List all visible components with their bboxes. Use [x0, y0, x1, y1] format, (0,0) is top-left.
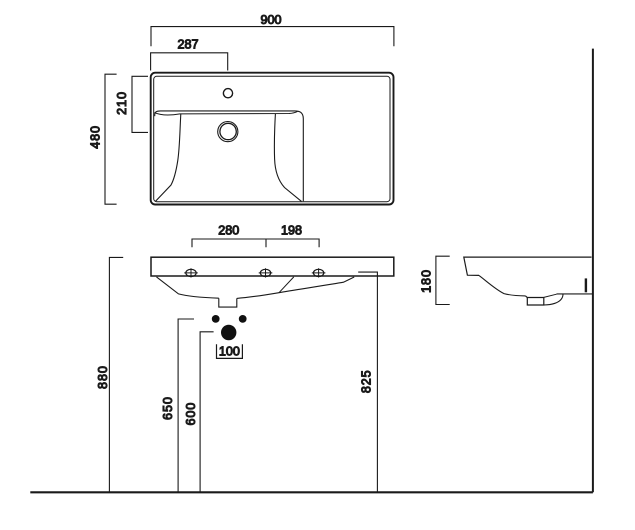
svg-text:480: 480 [88, 125, 102, 149]
svg-text:100: 100 [219, 344, 240, 358]
svg-text:600: 600 [184, 402, 198, 426]
svg-text:825: 825 [360, 369, 374, 393]
svg-text:280: 280 [218, 224, 239, 238]
svg-text:880: 880 [96, 365, 110, 389]
svg-text:650: 650 [161, 396, 175, 420]
svg-text:900: 900 [260, 13, 281, 27]
svg-text:180: 180 [419, 269, 433, 293]
svg-text:198: 198 [281, 224, 302, 238]
svg-text:287: 287 [177, 38, 198, 52]
svg-text:210: 210 [115, 91, 129, 115]
